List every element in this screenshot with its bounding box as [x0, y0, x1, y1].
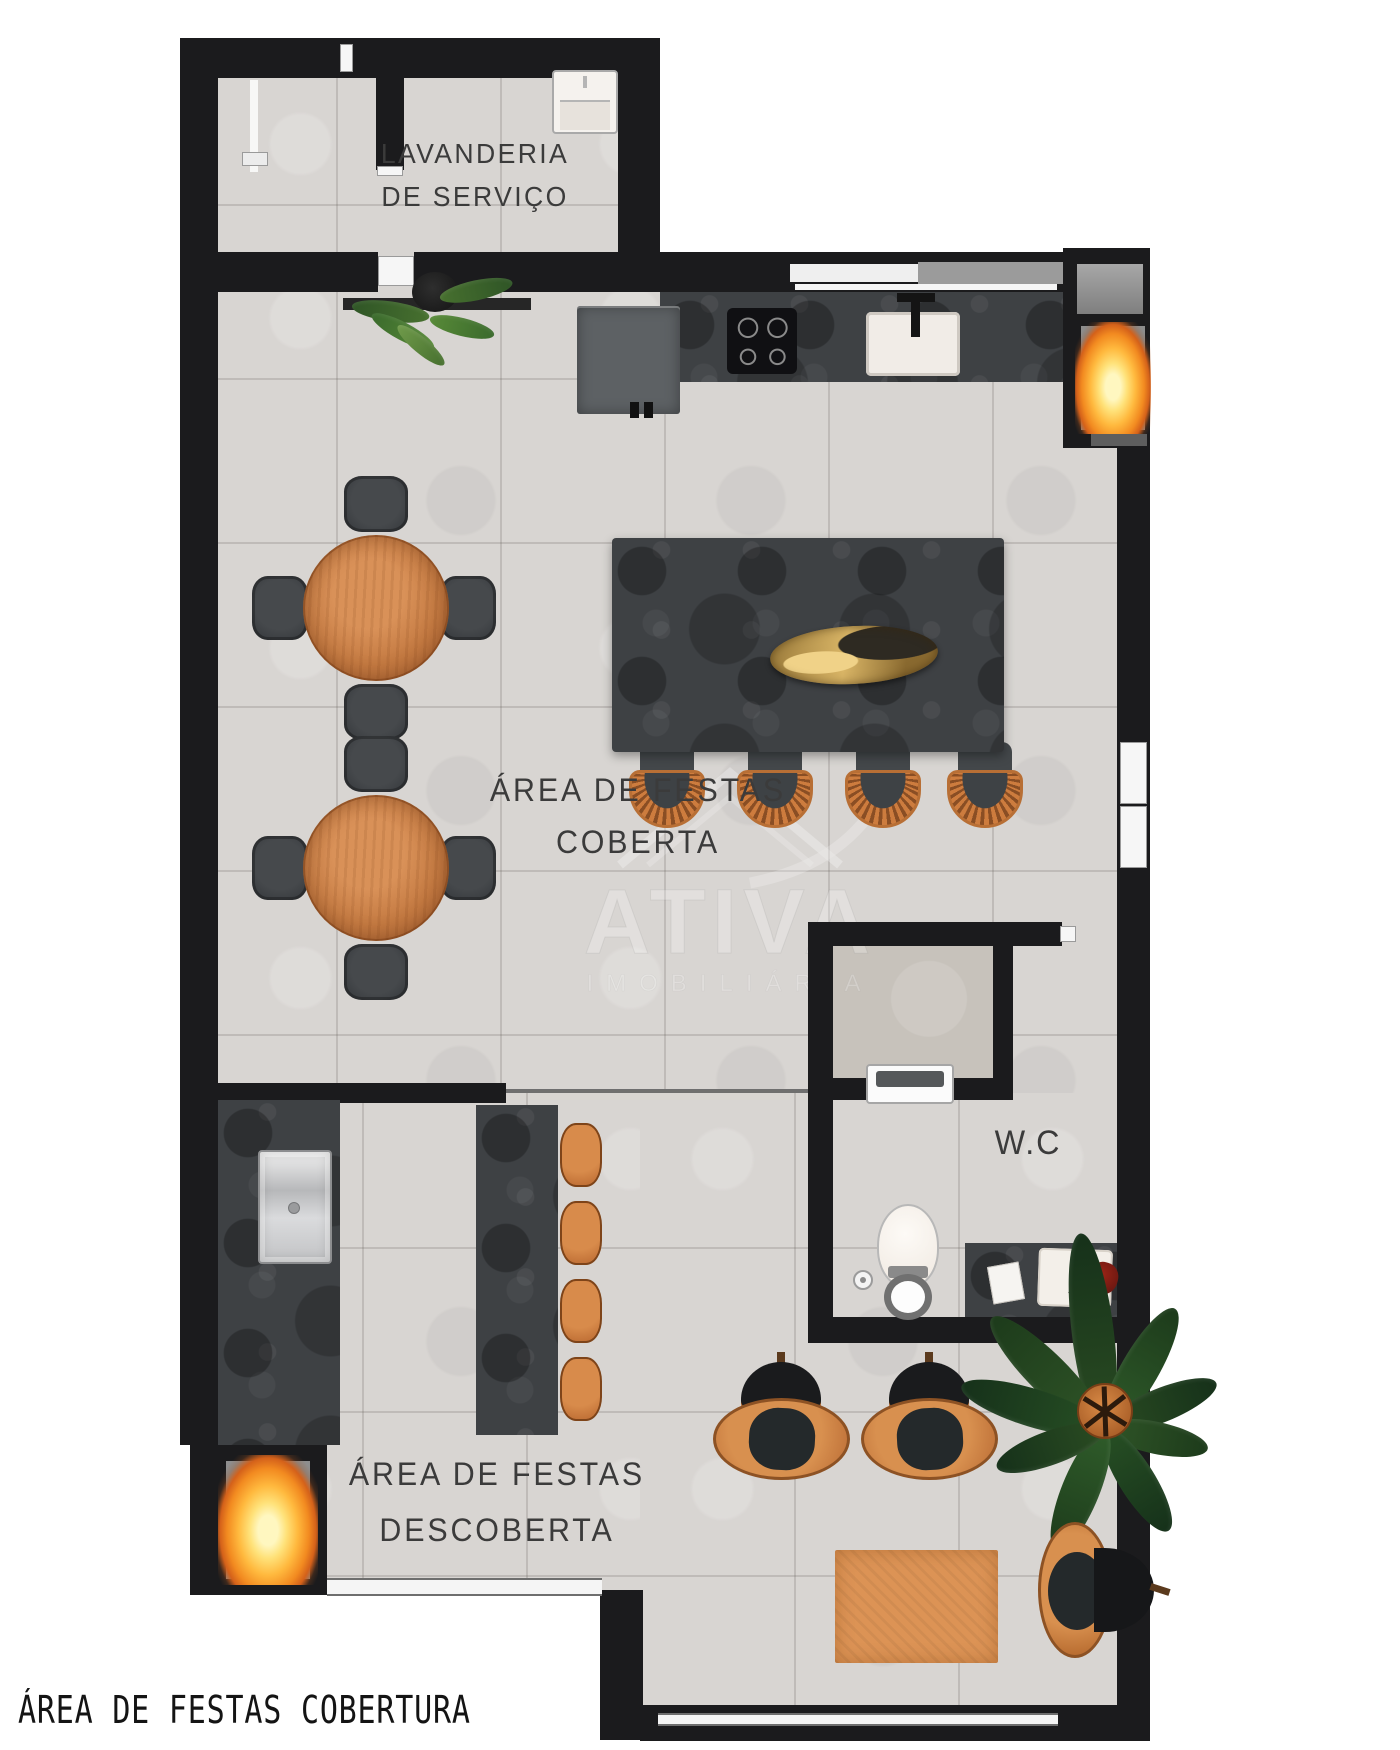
wall-wc-left — [808, 946, 833, 1317]
pipe-cap — [242, 152, 268, 166]
floor-step-line — [506, 1089, 812, 1093]
dining-chair — [252, 576, 308, 640]
kitchen-faucet-bar — [897, 293, 935, 302]
top-wall-marker — [340, 44, 353, 72]
washing-machine-knob — [583, 76, 587, 88]
uncovered-area-label-line2: DESCOBERTA — [336, 1502, 659, 1558]
laundry-label-line1: LAVANDERIA — [337, 132, 613, 175]
shower-bench-pad — [876, 1071, 944, 1087]
dining-chair — [344, 476, 408, 532]
egg-chair-canopy — [1094, 1548, 1154, 1632]
kitchen-window-ledge — [790, 264, 920, 282]
fireplace-grill — [1063, 248, 1150, 448]
round-wood-table — [303, 535, 449, 681]
bar-counter — [476, 1105, 558, 1435]
shower-bench — [866, 1064, 954, 1104]
glass-railing-bottom — [658, 1713, 1058, 1726]
floor-plan: ATIVA IMOBILIÁRIA — [0, 0, 1400, 1750]
lounge-chair — [713, 1352, 850, 1480]
bar-stool — [560, 1123, 602, 1187]
kitchen-window-sill — [795, 284, 1057, 290]
wall-left-lower — [180, 1103, 218, 1445]
fireplace-shelf — [1077, 264, 1143, 314]
kitchen-island — [577, 306, 680, 414]
wicker-chair — [845, 742, 921, 828]
wall-shower-right — [993, 946, 1013, 1078]
kitchen-counter — [660, 292, 1070, 382]
island-handle — [644, 402, 653, 418]
hanging-egg-chair — [1038, 1518, 1164, 1660]
wicker-chair-back — [845, 770, 921, 828]
palm-plant — [960, 1215, 1205, 1560]
outdoor-sink — [258, 1150, 332, 1264]
right-door-marker-upper — [1120, 742, 1147, 804]
uncovered-area-label: ÁREA DE FESTAS DESCOBERTA — [336, 1446, 659, 1558]
dining-chair — [252, 836, 308, 900]
fire-icon — [218, 1455, 318, 1585]
palm-pot — [1077, 1383, 1133, 1439]
dining-chair — [344, 684, 408, 740]
fire-pit-enclosure — [190, 1445, 327, 1595]
washing-machine — [552, 70, 618, 134]
island-handle — [630, 402, 639, 418]
fire-pit-box — [226, 1461, 310, 1579]
bar-stool — [560, 1279, 602, 1343]
dining-chair — [344, 736, 408, 792]
wall-band-left — [180, 252, 378, 292]
fireplace-firebox — [1081, 326, 1145, 430]
toilet-bowl — [884, 1274, 932, 1320]
round-wood-table — [303, 795, 449, 941]
glass-railing-left — [327, 1578, 602, 1596]
washing-machine-door — [560, 100, 610, 130]
lounge-chair-seat — [895, 1406, 964, 1471]
fire-icon — [1075, 322, 1151, 434]
plan-caption: ÁREA DE FESTAS COBERTURA — [18, 1688, 524, 1732]
palm-trunk-bar — [1102, 1386, 1109, 1436]
uncovered-area-label-line1: ÁREA DE FESTAS — [336, 1446, 659, 1502]
toilet-paper-core — [860, 1277, 866, 1283]
outdoor-rug — [835, 1550, 998, 1663]
kitchen-window — [918, 262, 1063, 284]
hall-door-marker — [378, 256, 414, 286]
covered-area-label: ÁREA DE FESTAS COBERTA — [477, 764, 800, 868]
right-door-marker-lower — [1120, 806, 1147, 868]
cooktop — [727, 308, 797, 374]
toilet-paper-roll — [853, 1270, 873, 1290]
outdoor-sink-drain — [288, 1202, 300, 1214]
covered-area-label-line1: ÁREA DE FESTAS — [477, 764, 800, 816]
fireplace-base — [1091, 434, 1147, 446]
wall-left — [180, 38, 218, 1103]
wicker-chair — [947, 742, 1023, 828]
shower-door-marker — [1060, 926, 1076, 942]
wall-connector — [600, 1590, 643, 1740]
wc-label: W.C — [971, 1124, 1085, 1163]
lounge-chair-seat — [747, 1406, 816, 1471]
covered-area-label-line2: COBERTA — [477, 816, 800, 868]
laundry-label-line2: DE SERVIÇO — [337, 175, 613, 218]
wicker-chair-back — [947, 770, 1023, 828]
bar-stool — [560, 1201, 602, 1265]
bar-stool — [560, 1357, 602, 1421]
laundry-label: LAVANDERIA DE SERVIÇO — [337, 132, 613, 218]
dining-chair — [344, 944, 408, 1000]
wall-shower-top — [808, 922, 1062, 946]
